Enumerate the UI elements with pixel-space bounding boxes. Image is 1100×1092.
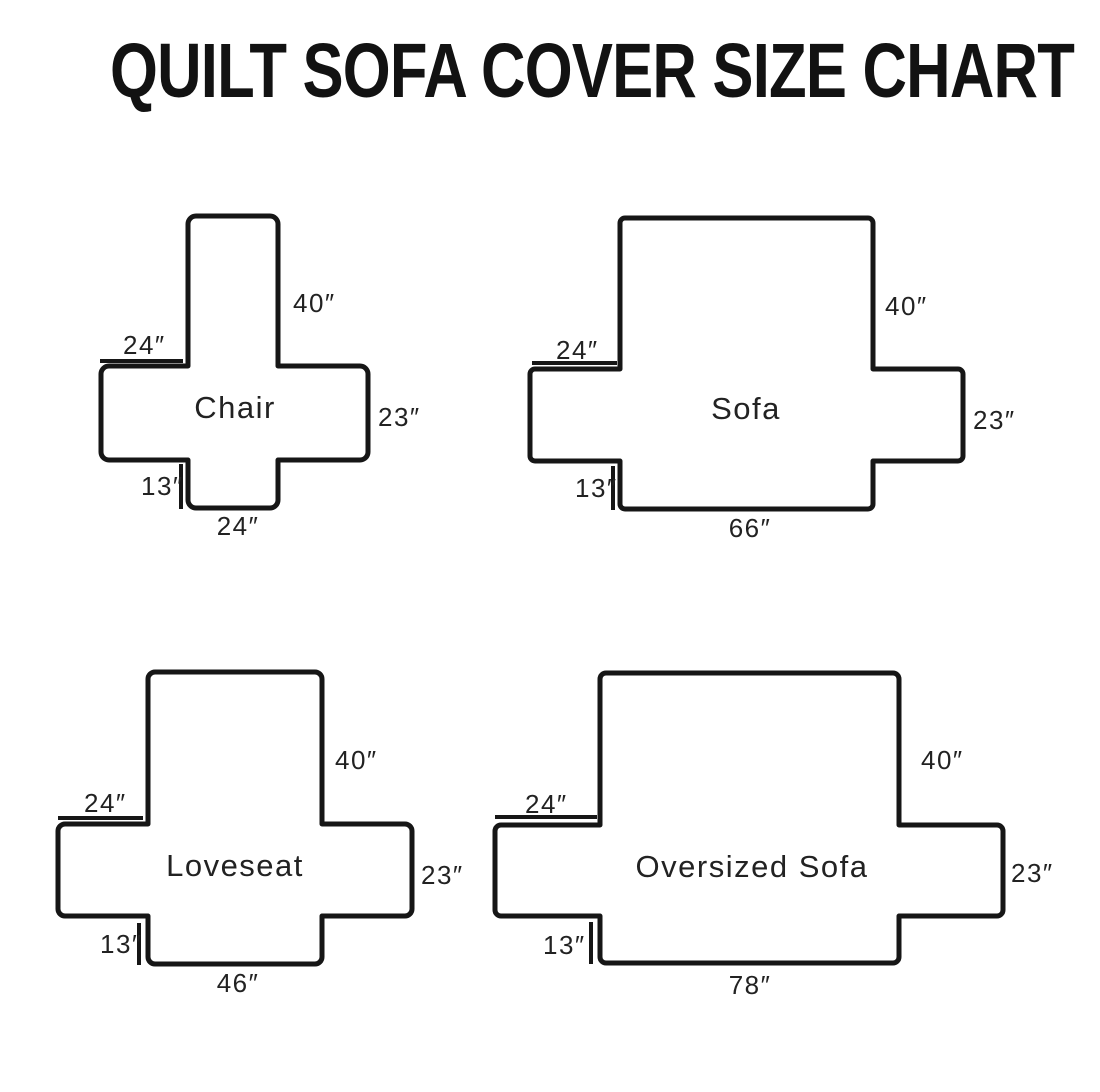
oversized-sofa-shape — [495, 673, 1003, 964]
oversized-sofa-arm-width-label: 24″ — [525, 791, 568, 817]
loveseat-name-label: Loveseat — [166, 850, 304, 881]
loveseat-arm-width-label: 24″ — [84, 790, 127, 816]
cover-shapes-canvas — [0, 0, 1100, 1092]
sofa-back-height-label: 40″ — [885, 293, 928, 319]
chair-bottom-width-label: 24″ — [217, 513, 260, 539]
chair-shape — [100, 216, 368, 509]
loveseat-bottom-width-label: 46″ — [217, 970, 260, 996]
chair-side-height-label: 23″ — [378, 404, 421, 430]
loveseat-front-drop-label: 13″ — [100, 931, 143, 957]
size-chart-page: QUILT SOFA COVER SIZE CHART 40″ 24″ Cha — [0, 0, 1100, 1092]
loveseat-side-height-label: 23″ — [421, 862, 464, 888]
oversized-sofa-side-height-label: 23″ — [1011, 860, 1054, 886]
chair-front-drop-label: 13″ — [141, 473, 184, 499]
chair-name-label: Chair — [194, 392, 276, 423]
sofa-side-height-label: 23″ — [973, 407, 1016, 433]
sofa-name-label: Sofa — [711, 393, 781, 424]
oversized-sofa-front-drop-label: 13″ — [543, 932, 586, 958]
loveseat-back-height-label: 40″ — [335, 747, 378, 773]
chair-arm-width-label: 24″ — [123, 332, 166, 358]
chair-back-height-label: 40″ — [293, 290, 336, 316]
oversized-sofa-name-label: Oversized Sofa — [636, 851, 869, 882]
sofa-arm-width-label: 24″ — [556, 337, 599, 363]
oversized-sofa-bottom-width-label: 78″ — [729, 972, 772, 998]
oversized-sofa-back-height-label: 40″ — [921, 747, 964, 773]
sofa-front-drop-label: 13″ — [575, 475, 618, 501]
sofa-bottom-width-label: 66″ — [729, 515, 772, 541]
loveseat-shape — [58, 672, 412, 965]
